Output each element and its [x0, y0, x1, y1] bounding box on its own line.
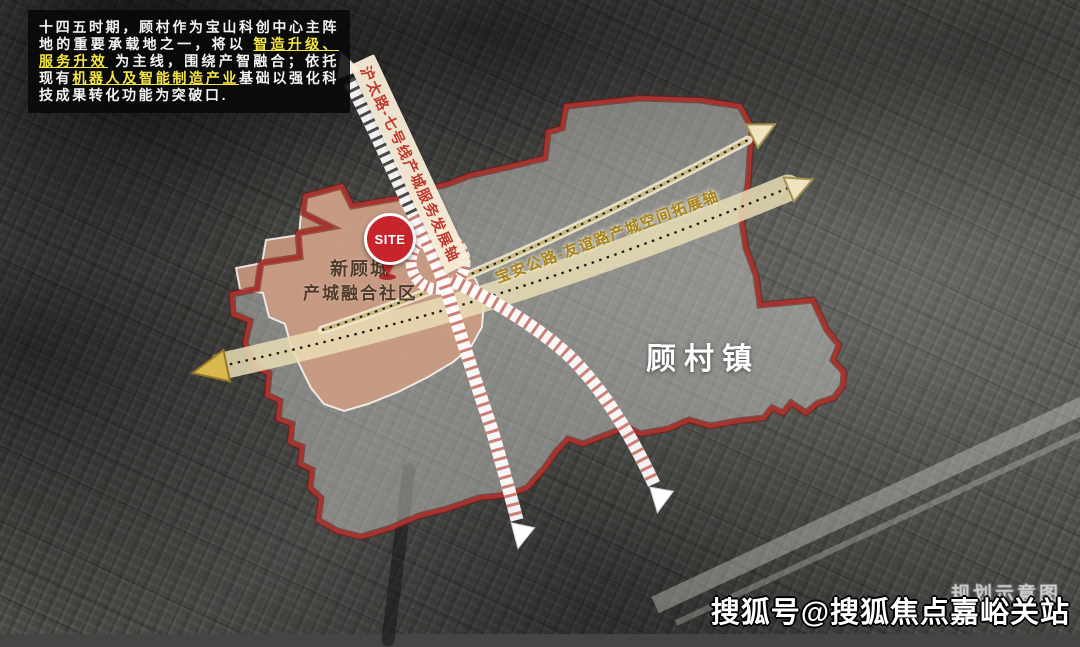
- xingucheng-label-line1: 新顾城: [278, 256, 442, 282]
- axis-arrowhead-southeast: [646, 487, 674, 515]
- xingucheng-label: 新顾城 产城融合社区: [278, 256, 442, 307]
- site-pin-label: SITE: [375, 232, 406, 247]
- location-pin-icon: SITE: [364, 213, 416, 265]
- description-highlight-2: 机器人及智能制造产业: [72, 70, 239, 86]
- corridor-arrowhead-sw: [189, 350, 230, 389]
- axis-arrowhead-south: [506, 523, 534, 551]
- gucun-town-label: 顾村镇: [646, 334, 760, 378]
- xingucheng-label-line2: 产城融合社区: [278, 282, 442, 307]
- sohu-watermark: 搜狐号@搜狐焦点嘉峪关站: [711, 589, 1070, 631]
- planning-description-box: 十四五时期，顾村作为宝山科创中心主阵地的重要承载地之一，将以 智造升级、服务升效…: [28, 10, 350, 113]
